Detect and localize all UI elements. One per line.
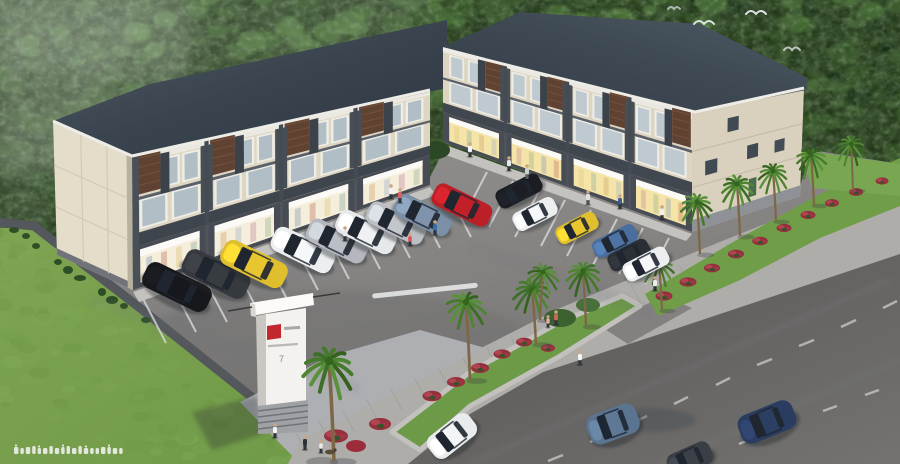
svg-text:7: 7 — [279, 354, 284, 364]
